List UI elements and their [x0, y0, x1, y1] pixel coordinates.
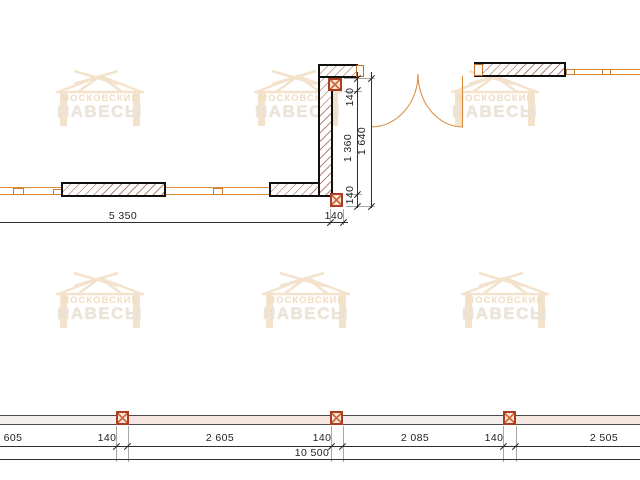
- door-swing-arc: [371, 74, 463, 127]
- beam-band-panel: [128, 416, 331, 424]
- beam-band-bottom-edge: [0, 424, 640, 425]
- dimension-text: 140: [98, 433, 117, 443]
- dimension-text: 5 350: [109, 211, 137, 221]
- post-marker-icon: [116, 411, 129, 425]
- dimension-text: 2 505: [590, 433, 618, 443]
- beam-band-top-edge: [0, 415, 640, 416]
- dimension-text: 2 085: [401, 433, 429, 443]
- dimension-line-horizontal: [0, 222, 348, 223]
- dimension-text: 140: [345, 88, 355, 107]
- beam-band-panel: [516, 416, 640, 424]
- post-marker-icon: [330, 411, 343, 425]
- dimension-text: 1 640: [357, 127, 367, 155]
- door-swing-overlay: [0, 0, 640, 480]
- dimension-text: 1 360: [343, 134, 353, 162]
- dimension-text: 140: [313, 433, 332, 443]
- dimension-text: 2 605: [206, 433, 234, 443]
- cad-drawing-canvas: МОСКОВСКИЕ НАВЕСЫ МОСКОВСКИЕ НАВЕСЫ МОСК…: [0, 0, 640, 480]
- dimension-text: 140: [345, 186, 355, 205]
- post-marker-icon: [503, 411, 516, 425]
- dimension-text: 605: [4, 433, 23, 443]
- dimension-line-total: [0, 459, 640, 460]
- dimension-text: 140: [485, 433, 504, 443]
- dimension-text: 140: [325, 211, 344, 221]
- dimension-line-vertical-outer: [371, 72, 372, 208]
- dimension-text-total: 10 500: [295, 448, 330, 458]
